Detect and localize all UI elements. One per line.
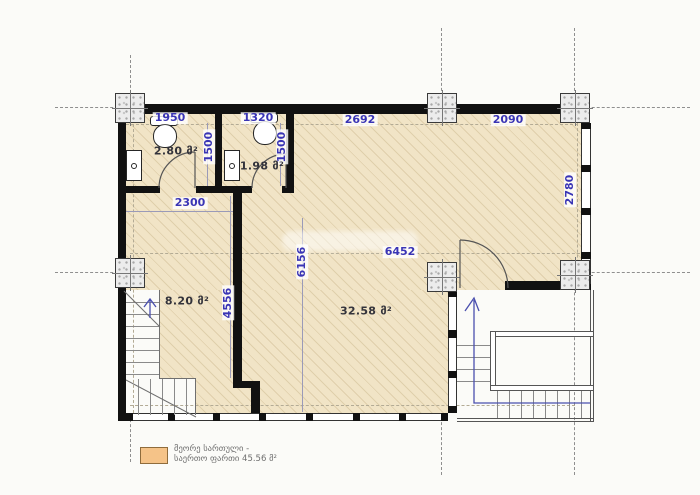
room-area-wc2: 1.98 მ²	[240, 160, 284, 173]
legend-swatch	[140, 447, 168, 464]
room-area-main: 32.58 მ²	[340, 305, 392, 318]
dim-label-6452: 6452	[383, 246, 418, 258]
dim-label-1950: 1950	[153, 112, 188, 124]
dim-label-2780: 2780	[564, 173, 576, 208]
dim-label-4556: 4556	[222, 286, 234, 321]
door-swings	[159, 152, 508, 288]
arrow-left-stair	[144, 299, 156, 318]
dim-label-1320: 1320	[241, 112, 276, 124]
floor-plan-canvas: 1950 1320 2692 2090 1500 1500 2300 2780 …	[0, 0, 700, 495]
arrow-right-stair	[465, 298, 590, 403]
legend-line2: საერთო ფართი 45.56 მ²	[174, 454, 277, 465]
room-area-wc1: 2.80 მ²	[154, 145, 198, 158]
room-area-hall: 8.20 მ²	[165, 295, 209, 308]
dim-label-2692: 2692	[343, 114, 378, 126]
stair-break-lines	[124, 291, 196, 417]
dim-label-6156: 6156	[296, 245, 308, 280]
dim-label-1500a: 1500	[203, 130, 215, 165]
door-arc-entry	[460, 240, 508, 288]
dim-label-2300: 2300	[173, 197, 208, 209]
dim-label-2090: 2090	[491, 114, 526, 126]
